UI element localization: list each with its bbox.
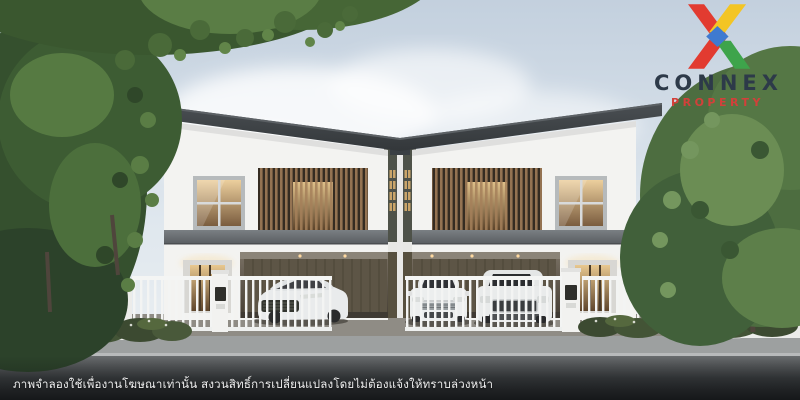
logo-yellow-arm [709,4,746,32]
real-estate-render: CONNEX PROPERTY ภาพจำลองใช้เพื่องานโฆษณา… [0,0,800,400]
right-carport-ceiling [412,252,560,259]
brand-tagline: PROPERTY [640,96,792,109]
right-house-window [555,176,607,230]
right-floor-band [412,230,636,244]
logo-green-arm [715,41,750,69]
left-floor-band [164,230,388,244]
right-house-louver-balcony [432,168,542,230]
connex-x-logo-icon [681,4,751,69]
gate-post-right [561,268,581,332]
brand-name: CONNEX [640,71,792,95]
right-sliding-gate [405,280,562,329]
disclaimer-text: ภาพจำลองใช้เพื่องานโฆษณาเท่านั้น สงวนสิท… [13,376,493,394]
left-house-window [193,176,245,230]
video-intercom [215,287,226,301]
house-number-plate [566,303,576,308]
curb [0,353,800,356]
brand-logo: CONNEX PROPERTY [640,4,792,109]
left-sliding-gate [228,280,332,329]
gate-post-left [211,270,229,332]
house-number-plate [216,304,225,309]
left-carport-ceiling [240,252,388,259]
center-pillar [397,148,403,318]
left-house-louver-balcony [258,168,368,230]
video-intercom [565,285,577,300]
